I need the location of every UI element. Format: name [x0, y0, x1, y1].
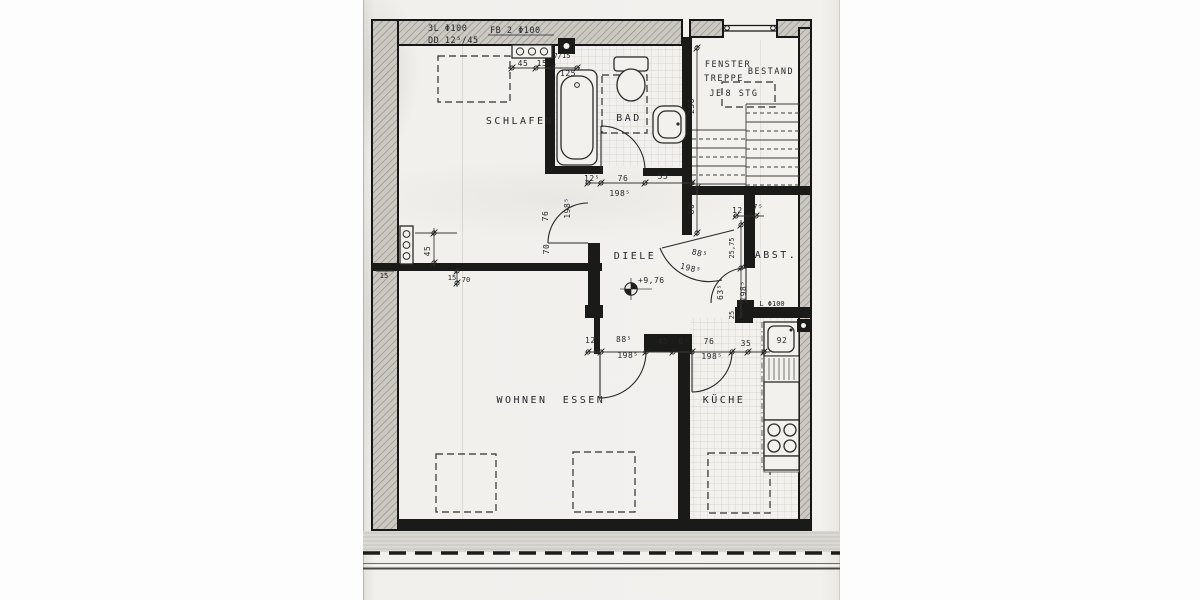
room-label-hall: DIELE	[614, 251, 657, 262]
stair-label-stg: 8 STG	[725, 89, 758, 99]
stove-burner	[768, 424, 780, 436]
room-label-living: WOHNEN	[496, 395, 547, 406]
dim: 12⁵	[732, 206, 748, 215]
stair-window	[723, 20, 777, 37]
stair-label-treppe: TREPPE	[704, 74, 744, 84]
kitchen-vent-hole	[801, 323, 806, 328]
dim: 7/15	[554, 52, 571, 60]
stair-label-je: JE	[709, 89, 722, 99]
pipe-note-left2: DD 12⁵/45	[428, 36, 479, 46]
stair-label-fenster: FENSTER	[705, 60, 751, 70]
kitchen-base-unit	[764, 456, 799, 470]
dim: 7⁵	[753, 203, 764, 212]
dim: 198⁵	[617, 351, 638, 360]
wall-bottom	[398, 519, 811, 531]
dim: 198⁵	[739, 280, 748, 301]
dim: 15	[537, 59, 548, 68]
stairs	[692, 104, 799, 186]
dim: 45	[658, 337, 669, 346]
stair-label-bestand: BESTAND	[748, 67, 794, 77]
wall-hall-west-lower	[594, 316, 600, 354]
washbasin-tap	[676, 122, 679, 125]
wall-kitchen-west	[678, 334, 690, 522]
room-label-dining: ESSEN	[563, 395, 606, 406]
dim: 15	[380, 272, 388, 280]
dim: 55	[658, 172, 669, 181]
level-value: +9,76	[638, 276, 665, 285]
dim: 70	[542, 244, 551, 255]
room-label-kitchen: KÜCHE	[703, 393, 746, 406]
room-label-storage: ABST.	[755, 250, 798, 261]
dim: 63⁵	[716, 284, 725, 300]
stove-burner	[784, 424, 796, 436]
sink-tap	[790, 329, 793, 332]
dim: 198⁵	[609, 189, 630, 198]
dim: 76	[541, 211, 550, 222]
wall-bath-bottom-left	[545, 166, 603, 174]
wall-right	[799, 28, 811, 530]
dim: 45	[423, 246, 432, 257]
drainboard-icon	[764, 356, 799, 382]
floorplan-drawing: 3L Φ100 DD 12⁵/45 FB 2 Φ100 L Φ100 SCHLA…	[0, 0, 1200, 600]
dim: 45	[518, 59, 529, 68]
wall-hall-west	[588, 243, 600, 307]
room-label-bedroom: SCHLAFEN	[486, 116, 554, 127]
dim: 76	[618, 174, 629, 183]
dim: 35	[741, 339, 752, 348]
toilet-bowl-icon	[617, 69, 645, 101]
pipe-note-bath: FB 2 Φ100	[490, 26, 541, 36]
dim: 88⁵	[616, 335, 632, 344]
dim: 250	[687, 98, 696, 114]
dim: 25,75	[728, 237, 736, 258]
kitchen-worktop	[764, 382, 799, 420]
vent-pipe-hole	[564, 43, 570, 49]
stove-burner	[768, 440, 780, 452]
roof-eave-band	[363, 531, 840, 569]
wall-stairwell-bottom	[690, 186, 811, 195]
scanned-floorplan-page: 3L Φ100 DD 12⁵/45 FB 2 Φ100 L Φ100 SCHLA…	[0, 0, 1200, 600]
room-label-bath: BAD	[616, 113, 642, 124]
radiator-icon-left	[400, 226, 413, 264]
dim: 6⁵	[679, 337, 690, 346]
stove-burner	[784, 440, 796, 452]
skylight-living-2	[573, 452, 635, 512]
dim: 198⁵	[701, 352, 722, 361]
eave-hatch	[363, 531, 840, 552]
dim: 198⁵	[563, 197, 572, 218]
dim: 12⁵	[584, 174, 600, 183]
skylight-bedroom	[438, 56, 510, 102]
dim: 88⁵	[691, 247, 709, 260]
pipe-note-left: 3L Φ100	[428, 24, 467, 34]
dim: 70	[462, 276, 470, 284]
dim: 15	[448, 274, 456, 282]
skylight-living-1	[436, 454, 496, 512]
dim: 76	[704, 337, 715, 346]
pipe-note-kitchen: L Φ100	[759, 300, 784, 308]
dim: 12⁵	[585, 336, 601, 345]
wall-stair-top-left	[690, 20, 723, 37]
dim: 198⁵	[679, 262, 702, 276]
wall-kitchen-north-step	[735, 307, 753, 323]
radiator-icon	[512, 45, 552, 58]
bathtub-inner	[561, 76, 593, 159]
dim: 25	[728, 311, 736, 319]
dim: 80	[687, 204, 696, 215]
sink-dim: 92	[777, 336, 788, 345]
dim: 125	[560, 69, 576, 78]
